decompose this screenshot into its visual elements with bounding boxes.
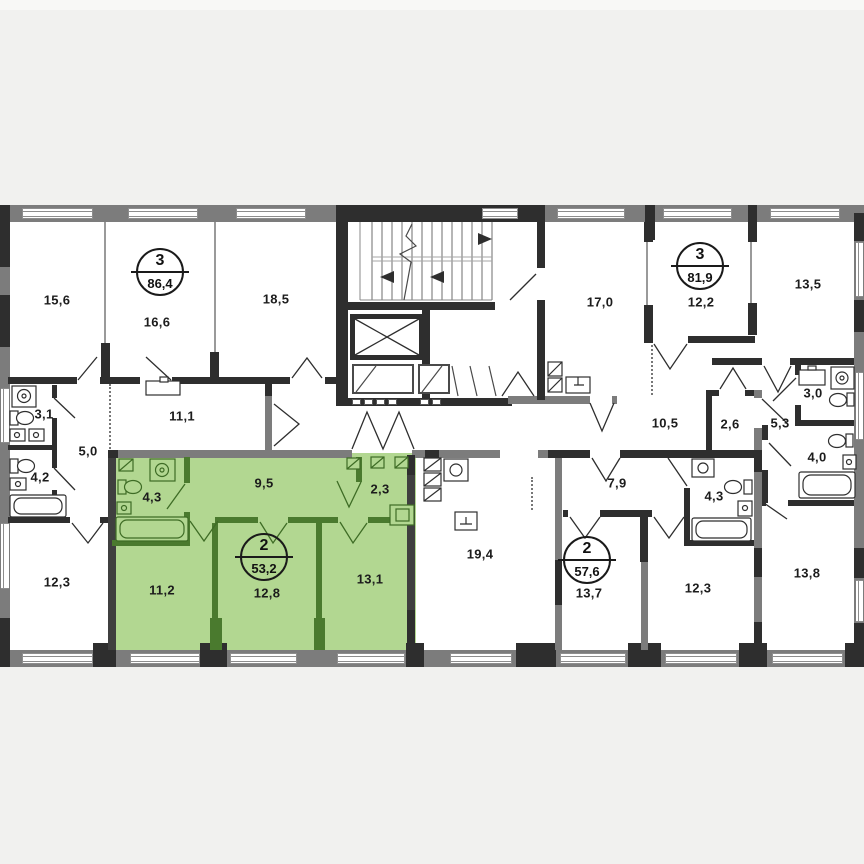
vent bbox=[352, 399, 361, 405]
room-area-label: 15,6 bbox=[44, 293, 71, 308]
utility-shaft bbox=[418, 364, 450, 394]
room-area-label: 5,3 bbox=[771, 416, 790, 431]
wall bbox=[712, 358, 762, 365]
apartment-rooms-count: 2 bbox=[242, 537, 286, 555]
room-area-label: 12,2 bbox=[688, 295, 715, 310]
room-area-label: 4,3 bbox=[143, 490, 162, 505]
wall-pier bbox=[407, 610, 415, 650]
floor-plan: 15,6 16,6 18,5 3,1 11,1 5,0 4,2 12,3 4,3… bbox=[0, 0, 864, 864]
wall bbox=[790, 358, 854, 365]
wall-pier bbox=[425, 450, 439, 458]
wall-stairwell-right bbox=[537, 300, 545, 400]
window bbox=[128, 208, 198, 219]
room-area-label: 10,5 bbox=[652, 416, 679, 431]
wall-pier bbox=[754, 622, 762, 650]
wall bbox=[555, 458, 562, 650]
wall bbox=[104, 222, 106, 343]
window bbox=[482, 208, 518, 219]
apartment-rooms-count: 3 bbox=[678, 246, 722, 264]
wall-green bbox=[316, 523, 322, 650]
room-area-label: 4,0 bbox=[808, 450, 827, 465]
wall bbox=[52, 490, 57, 517]
window bbox=[665, 653, 737, 664]
wall bbox=[762, 425, 768, 440]
apartment-badge: 2 57,6 bbox=[563, 536, 611, 584]
room-area-label: 11,2 bbox=[149, 583, 175, 598]
window bbox=[230, 653, 297, 664]
window bbox=[22, 208, 93, 219]
apartment-rooms-count: 2 bbox=[565, 540, 609, 558]
window bbox=[1, 523, 9, 589]
wall bbox=[745, 390, 754, 396]
vent bbox=[432, 399, 441, 405]
room-area-label: 13,7 bbox=[576, 586, 603, 601]
wall bbox=[600, 510, 652, 517]
room-area-label: 3,0 bbox=[804, 386, 823, 401]
wall-pier bbox=[644, 222, 653, 242]
room-area-label: 13,1 bbox=[357, 572, 384, 587]
opening-dashed-line bbox=[651, 345, 653, 395]
wall-green bbox=[112, 540, 190, 546]
room-area-label: 12,8 bbox=[254, 586, 281, 601]
window bbox=[772, 653, 843, 664]
wall bbox=[688, 336, 755, 343]
window bbox=[557, 208, 625, 219]
wall bbox=[684, 540, 760, 546]
wall-pier bbox=[854, 300, 864, 332]
wall bbox=[706, 390, 712, 450]
wall-pier bbox=[754, 548, 762, 577]
wall-pier bbox=[108, 450, 118, 458]
wall bbox=[762, 470, 768, 503]
room-area-label: 5,0 bbox=[79, 444, 98, 459]
window bbox=[337, 653, 405, 664]
wall bbox=[684, 488, 690, 546]
apartment-badge-highlighted[interactable]: 2 53,2 bbox=[240, 533, 288, 581]
wall-pier bbox=[754, 450, 762, 472]
room-area-label: 4,3 bbox=[705, 489, 724, 504]
wall bbox=[795, 405, 801, 426]
wall-pier bbox=[407, 455, 415, 475]
utility-shaft bbox=[352, 364, 414, 394]
room-area-label: 2,6 bbox=[721, 417, 740, 432]
wall-pier bbox=[854, 213, 864, 241]
wall bbox=[108, 455, 116, 650]
vent bbox=[364, 399, 373, 405]
window bbox=[236, 208, 306, 219]
wall-pier bbox=[0, 295, 10, 347]
window bbox=[450, 653, 512, 664]
window bbox=[560, 653, 626, 664]
wall-pier bbox=[748, 222, 757, 242]
wall-green bbox=[368, 517, 408, 523]
wall bbox=[108, 450, 352, 458]
window bbox=[856, 580, 863, 622]
room-area-label: 11,1 bbox=[169, 409, 195, 424]
wall-pier bbox=[748, 303, 757, 335]
wall bbox=[684, 450, 760, 458]
apartment-rooms-count: 3 bbox=[138, 252, 182, 270]
wall-pier bbox=[516, 643, 556, 667]
wall-stairwell-left bbox=[336, 215, 348, 406]
elevator-shaft bbox=[350, 314, 424, 360]
apartment-total-area: 53,2 bbox=[242, 561, 286, 576]
room-area-label: 4,2 bbox=[31, 470, 50, 485]
apartment-total-area: 81,9 bbox=[678, 270, 722, 285]
wall-pier bbox=[265, 380, 272, 396]
wall bbox=[612, 396, 617, 404]
wall bbox=[100, 517, 108, 523]
apartment-total-area: 86,4 bbox=[138, 276, 182, 291]
room-area-label: 13,5 bbox=[795, 277, 822, 292]
wall-pier bbox=[854, 548, 864, 578]
vent bbox=[388, 399, 397, 405]
wall bbox=[100, 377, 140, 384]
window bbox=[856, 372, 863, 440]
wall bbox=[795, 365, 801, 375]
wall-green bbox=[356, 457, 362, 482]
opening-dashed-line bbox=[109, 384, 111, 452]
apartment-total-area: 57,6 bbox=[565, 564, 609, 579]
room-area-label: 18,5 bbox=[263, 292, 290, 307]
window bbox=[1, 388, 9, 443]
window bbox=[663, 208, 732, 219]
wall bbox=[8, 445, 52, 450]
wall-pier bbox=[0, 618, 10, 652]
wall-pier bbox=[555, 560, 562, 605]
wall bbox=[8, 377, 77, 384]
wall-pier bbox=[854, 623, 864, 652]
wall bbox=[348, 302, 495, 310]
room-area-label: 12,3 bbox=[685, 581, 712, 596]
apartment-badge: 3 81,9 bbox=[676, 242, 724, 290]
opening-dashed-line bbox=[531, 477, 533, 510]
room-area-label: 13,8 bbox=[794, 566, 821, 581]
wall-pier bbox=[739, 643, 767, 667]
room-area-label: 17,0 bbox=[587, 295, 614, 310]
wall-green bbox=[212, 523, 218, 650]
wall bbox=[563, 450, 590, 458]
wall-green bbox=[184, 457, 190, 483]
vent bbox=[376, 399, 385, 405]
wall-green bbox=[215, 517, 258, 523]
wall-pier bbox=[640, 517, 648, 562]
room-area-label: 9,5 bbox=[255, 476, 274, 491]
wall-pier bbox=[0, 205, 10, 267]
wall bbox=[52, 385, 57, 398]
window bbox=[770, 208, 840, 219]
room-area-label: 3,1 bbox=[35, 407, 54, 422]
window bbox=[130, 653, 200, 664]
page-top-band bbox=[0, 0, 864, 10]
wall bbox=[214, 222, 216, 352]
wall bbox=[620, 450, 684, 458]
window bbox=[22, 653, 93, 664]
room-area-label: 2,3 bbox=[371, 482, 390, 497]
wall bbox=[754, 390, 762, 398]
wall-green bbox=[288, 517, 338, 523]
apartment-badge: 3 86,4 bbox=[136, 248, 184, 296]
wall bbox=[52, 418, 57, 468]
room-area-label: 7,9 bbox=[608, 476, 627, 491]
wall bbox=[563, 510, 568, 517]
window bbox=[856, 242, 863, 297]
wall bbox=[8, 517, 70, 523]
room-area-label: 12,3 bbox=[44, 575, 71, 590]
wall-pier bbox=[548, 450, 563, 458]
wall-stairwell-right bbox=[537, 215, 545, 268]
wall bbox=[648, 336, 652, 343]
wall bbox=[508, 396, 590, 404]
room-area-label: 16,6 bbox=[144, 315, 171, 330]
vent bbox=[420, 399, 429, 405]
wall bbox=[172, 377, 290, 384]
wall bbox=[795, 420, 854, 426]
wall bbox=[706, 390, 719, 396]
wall bbox=[762, 500, 766, 506]
wall bbox=[788, 500, 854, 506]
room-area-label: 19,4 bbox=[467, 547, 494, 562]
